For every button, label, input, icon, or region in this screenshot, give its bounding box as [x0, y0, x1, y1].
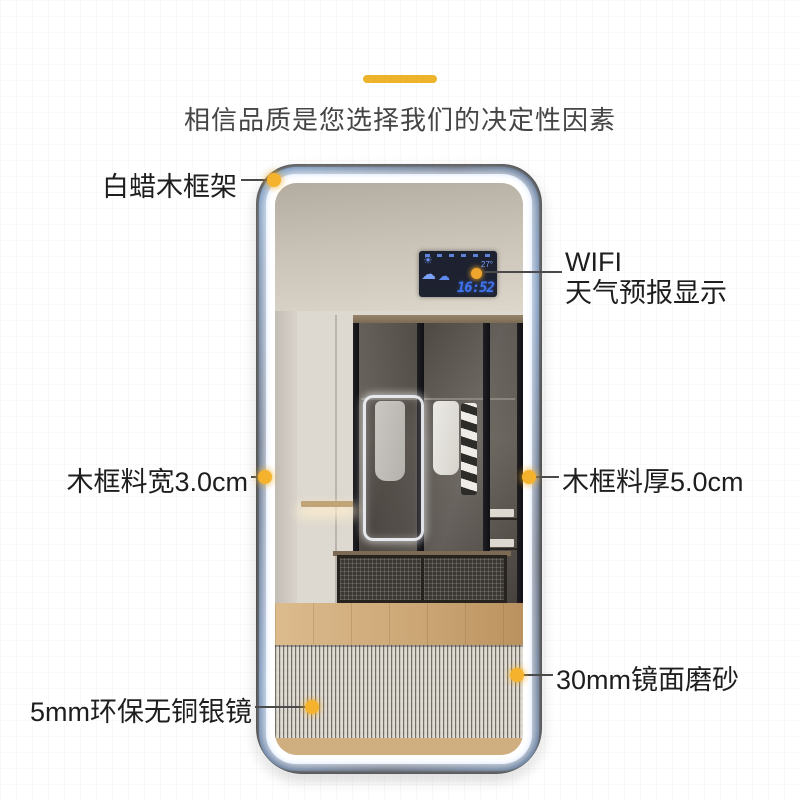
mirror-glass-reflection: ☀ ☁ ☁ 27° 16:52: [275, 183, 523, 755]
reflected-led-mirror-outline: [363, 395, 424, 541]
accent-divider-bar: [363, 75, 437, 83]
page-title: 相信品质是您选择我们的决定性因素: [0, 100, 800, 137]
mirror-product: ☀ ☁ ☁ 27° 16:52: [256, 164, 542, 774]
callout-wifi-line: [484, 271, 562, 273]
callout-silver-mirror-label: 5mm环保无铜银镜: [30, 690, 252, 729]
cloud-icon: ☁: [438, 270, 450, 282]
callout-frame-material-label: 白蜡木框架: [102, 165, 237, 204]
cloud-icon: ☁: [421, 267, 436, 282]
mesh-cabinet-divider: [421, 555, 424, 603]
temperature-readout: 27°: [481, 260, 493, 269]
hanging-striped-scarf: [461, 403, 477, 495]
wifi-weather-display: ☀ ☁ ☁ 27° 16:52: [419, 251, 497, 297]
clock-readout: 16:52: [457, 280, 494, 296]
wardrobe-door-frame: [517, 323, 523, 613]
callout-mirror-frosted-label: 30mm镜面磨砂: [556, 658, 739, 697]
callout-silver-mirror-dot: [305, 700, 319, 714]
callout-frame-material-dot: [267, 173, 281, 187]
callout-silver-mirror-line: [255, 706, 307, 708]
hanging-shirt: [433, 401, 459, 475]
callout-frame-thickness-label: 木框料厚5.0cm: [562, 460, 744, 499]
callout-wifi-line1: WIFI: [565, 247, 727, 278]
folded-clothes-stack: [488, 539, 514, 547]
sun-icon: [471, 268, 482, 279]
callout-frame-thickness-dot: [522, 470, 536, 484]
folded-clothes-stack: [488, 509, 514, 517]
reflection-wood-floor: [275, 603, 523, 647]
reflection-wall-left-column: [275, 311, 297, 651]
callout-wifi-line2: 天气预报显示: [565, 278, 727, 309]
wardrobe-top-rail: [353, 315, 523, 323]
reflection-striped-rug: [275, 645, 523, 738]
callout-frame-width-dot: [258, 470, 272, 484]
callout-mirror-frosted-line: [523, 674, 553, 676]
callout-frame-thickness-line: [535, 476, 559, 478]
callout-mirror-frosted-dot: [510, 668, 524, 682]
weather-status-row: [425, 254, 491, 257]
lit-wall-shelf: [301, 501, 353, 507]
reflection-floor-strip: [275, 738, 523, 755]
callout-wifi-label: WIFI 天气预报显示: [565, 247, 727, 309]
callout-frame-width-label: 木框料宽3.0cm: [66, 460, 248, 499]
